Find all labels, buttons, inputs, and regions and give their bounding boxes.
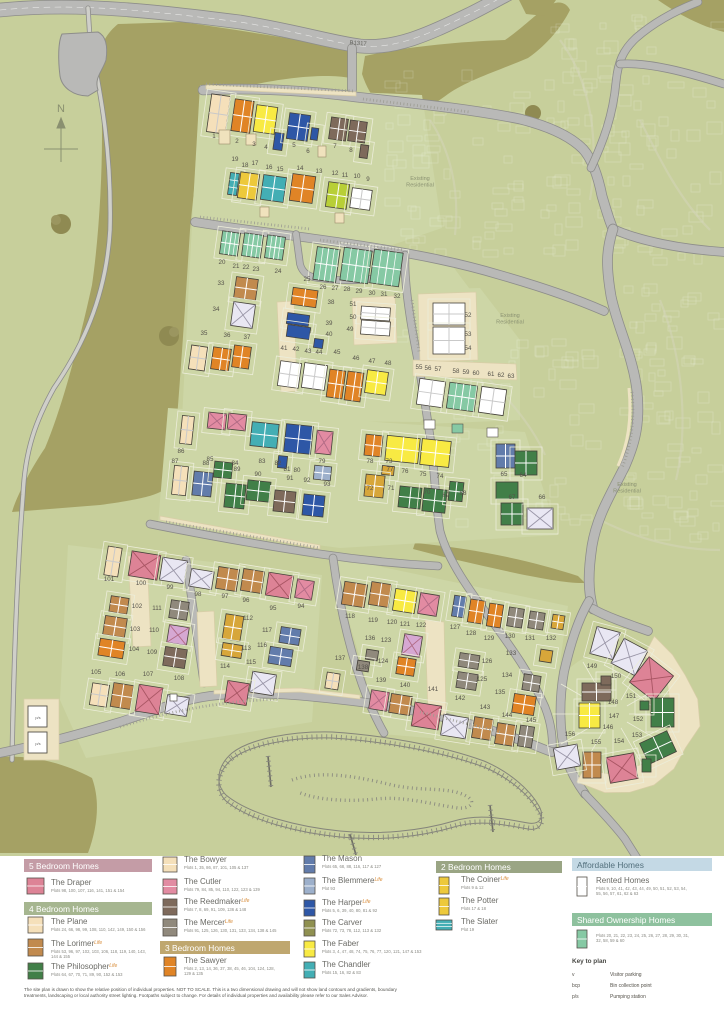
svg-text:99: 99: [167, 584, 174, 591]
svg-text:Rented Homes: Rented Homes: [596, 876, 649, 885]
svg-text:Plots 64, 67, 70, 71, 89, 90,: Plots 64, 67, 70, 71, 89, 90, 152 & 153: [51, 972, 123, 977]
svg-text:111: 111: [152, 605, 162, 612]
svg-text:147: 147: [609, 713, 620, 720]
svg-text:The Cutler: The Cutler: [184, 877, 222, 886]
svg-text:2 Bedroom Homes: 2 Bedroom Homes: [441, 862, 511, 872]
svg-text:67: 67: [509, 494, 516, 501]
svg-text:60: 60: [473, 370, 480, 377]
svg-text:52: 52: [465, 312, 472, 319]
svg-text:148: 148: [608, 699, 619, 706]
svg-text:The Draper: The Draper: [51, 878, 92, 887]
svg-text:The Faber: The Faber: [322, 939, 359, 948]
svg-text:100: 100: [136, 580, 147, 587]
svg-text:Shared Ownership Homes: Shared Ownership Homes: [577, 915, 675, 925]
svg-text:The Potter: The Potter: [461, 896, 499, 905]
svg-text:155: 155: [591, 739, 602, 746]
svg-text:66: 66: [539, 494, 546, 501]
svg-text:Plots 3, 4, 47, 48, 74, 75, 76: Plots 3, 4, 47, 48, 74, 75, 76, 77, 120,…: [322, 949, 422, 954]
svg-text:41: 41: [281, 345, 288, 352]
svg-text:The Bowyer: The Bowyer: [184, 855, 227, 864]
svg-text:62: 62: [498, 372, 505, 379]
svg-text:bcp: bcp: [572, 983, 580, 989]
svg-text:153: 153: [632, 732, 643, 739]
svg-text:23: 23: [253, 266, 260, 273]
svg-text:94: 94: [298, 603, 305, 610]
svg-text:45: 45: [334, 349, 341, 356]
svg-text:108: 108: [174, 675, 185, 682]
svg-text:112: 112: [243, 615, 253, 622]
svg-text:92: 92: [304, 477, 311, 484]
svg-text:110: 110: [149, 627, 159, 634]
svg-text:74: 74: [437, 473, 444, 480]
svg-text:Bin collection point: Bin collection point: [610, 983, 652, 989]
svg-text:15: 15: [277, 166, 284, 173]
svg-text:109: 109: [147, 649, 158, 656]
svg-text:123: 123: [381, 637, 392, 644]
svg-text:18: 18: [242, 162, 249, 169]
svg-text:151: 151: [626, 693, 637, 700]
svg-text:61: 61: [488, 371, 495, 378]
svg-text:Plots 72, 73, 78, 112, 113 & 1: Plots 72, 73, 78, 112, 113 & 132: [322, 928, 382, 933]
svg-text:42: 42: [293, 346, 300, 353]
svg-text:8: 8: [349, 147, 353, 154]
svg-text:75: 75: [420, 471, 427, 478]
svg-text:118: 118: [345, 613, 355, 620]
svg-text:128: 128: [466, 630, 477, 637]
svg-text:The Plane: The Plane: [51, 917, 88, 926]
svg-text:114: 114: [220, 663, 230, 670]
svg-text:p/s: p/s: [35, 741, 40, 746]
svg-text:139: 139: [376, 677, 387, 684]
svg-text:142: 142: [455, 695, 466, 702]
svg-text:93: 93: [324, 481, 331, 488]
svg-text:Plot 93: Plot 93: [322, 886, 336, 891]
svg-text:143: 143: [480, 704, 491, 711]
svg-text:The site plan is drawn to show: The site plan is drawn to show the relat…: [24, 987, 398, 998]
svg-text:50: 50: [350, 314, 357, 321]
svg-text:132: 132: [546, 635, 557, 642]
svg-text:The Sawyer: The Sawyer: [184, 956, 227, 965]
svg-text:20: 20: [219, 259, 226, 266]
svg-text:Plots 98, 100, 107, 116, 141,: Plots 98, 100, 107, 116, 141, 151 & 154: [51, 888, 125, 893]
svg-text:95: 95: [270, 605, 277, 612]
svg-text:29: 29: [356, 288, 363, 295]
svg-text:76: 76: [402, 468, 409, 475]
svg-text:54: 54: [465, 345, 472, 352]
svg-text:146: 146: [603, 724, 614, 731]
svg-text:63: 63: [508, 373, 515, 380]
svg-text:p/s: p/s: [35, 715, 40, 720]
svg-text:113: 113: [241, 645, 251, 652]
svg-text:The Slater: The Slater: [461, 917, 498, 926]
svg-text:24: 24: [275, 268, 282, 275]
svg-text:68: 68: [460, 490, 467, 497]
svg-text:90: 90: [255, 471, 262, 478]
svg-text:The PhilosopherLife: The PhilosopherLife: [51, 962, 118, 971]
svg-text:7: 7: [333, 143, 337, 150]
svg-text:27: 27: [332, 285, 339, 292]
svg-text:122: 122: [416, 622, 427, 629]
svg-text:Plots 7, 8, 69, 91, 109, 136 &: Plots 7, 8, 69, 91, 109, 136 & 148: [184, 907, 247, 912]
svg-text:47: 47: [369, 358, 376, 365]
svg-text:81: 81: [284, 466, 291, 473]
svg-text:89: 89: [234, 466, 241, 473]
svg-text:ExistingResidential: ExistingResidential: [613, 482, 641, 494]
svg-text:Plots 91, 125, 126, 130, 131,: Plots 91, 125, 126, 130, 131, 133, 134, …: [184, 928, 277, 933]
svg-text:96: 96: [243, 597, 250, 604]
svg-text:The Carver: The Carver: [322, 918, 362, 927]
svg-text:64: 64: [520, 472, 527, 479]
svg-text:97: 97: [222, 593, 229, 600]
svg-text:59: 59: [463, 369, 470, 376]
svg-text:12: 12: [332, 170, 339, 177]
svg-text:107: 107: [143, 671, 154, 678]
svg-text:44: 44: [316, 349, 323, 356]
svg-text:150: 150: [611, 673, 622, 680]
svg-text:77: 77: [387, 466, 394, 473]
svg-text:49: 49: [347, 326, 354, 333]
svg-text:133: 133: [506, 650, 517, 657]
svg-text:Plots 15, 16, 82 & 83: Plots 15, 16, 82 & 83: [322, 970, 362, 975]
svg-text:Plots 17 & 18: Plots 17 & 18: [461, 906, 487, 911]
svg-text:B1317: B1317: [349, 40, 367, 47]
svg-text:154: 154: [614, 738, 625, 745]
svg-text:46: 46: [353, 355, 360, 362]
svg-text:33: 33: [218, 280, 225, 287]
svg-text:17: 17: [252, 160, 259, 167]
svg-text:57: 57: [435, 366, 442, 373]
svg-text:156: 156: [565, 731, 576, 738]
svg-text:16: 16: [266, 164, 273, 171]
svg-text:101: 101: [104, 576, 115, 583]
svg-text:88: 88: [203, 460, 210, 467]
svg-text:98: 98: [195, 591, 202, 598]
svg-text:127: 127: [450, 624, 461, 631]
svg-text:Plots 5, 6, 39, 40, 80, 81 & 9: Plots 5, 6, 39, 40, 80, 81 & 92: [322, 908, 378, 913]
svg-text:22: 22: [243, 264, 250, 271]
svg-text:78: 78: [367, 458, 374, 465]
svg-text:ExistingResidential: ExistingResidential: [406, 176, 434, 188]
svg-text:141: 141: [428, 686, 439, 693]
svg-text:145: 145: [526, 717, 537, 724]
svg-text:71: 71: [388, 485, 395, 492]
svg-text:152: 152: [633, 716, 644, 723]
svg-text:69: 69: [443, 492, 450, 499]
svg-text:5 Bedroom Homes: 5 Bedroom Homes: [29, 861, 99, 871]
svg-text:Plots 24, 66, 98, 99, 108, 110: Plots 24, 66, 98, 99, 108, 110, 142, 149…: [51, 927, 146, 932]
svg-text:Plots 65, 68, 88, 116, 117 & 1: Plots 65, 68, 88, 116, 117 & 127: [322, 864, 382, 869]
svg-text:51: 51: [350, 301, 357, 308]
svg-text:Plots 1, 35, 86, 87, 101, 105: Plots 1, 35, 86, 87, 101, 105 & 137: [184, 865, 249, 870]
svg-text:The Mason: The Mason: [322, 854, 362, 863]
svg-text:38: 38: [328, 299, 335, 306]
svg-text:80: 80: [294, 467, 301, 474]
svg-text:6: 6: [306, 148, 310, 155]
svg-text:131: 131: [525, 635, 536, 642]
svg-text:Plots 79, 84, 85, 94, 110, 122: Plots 79, 84, 85, 94, 110, 122, 123 & 13…: [184, 887, 260, 892]
svg-text:31: 31: [381, 291, 388, 298]
svg-text:10: 10: [354, 173, 361, 180]
svg-text:4: 4: [264, 144, 268, 151]
svg-text:149: 149: [587, 663, 598, 670]
svg-text:N: N: [57, 103, 65, 115]
svg-text:73: 73: [386, 458, 393, 465]
svg-text:135: 135: [495, 689, 506, 696]
svg-text:102: 102: [132, 603, 143, 610]
svg-text:39: 39: [326, 320, 333, 327]
svg-text:86: 86: [178, 448, 185, 455]
svg-text:13: 13: [316, 168, 323, 175]
svg-text:32: 32: [394, 293, 401, 300]
svg-text:117: 117: [262, 627, 272, 634]
svg-text:2: 2: [235, 138, 239, 145]
svg-text:105: 105: [91, 669, 102, 676]
svg-text:91: 91: [287, 475, 294, 482]
svg-text:121: 121: [400, 621, 411, 628]
svg-text:103: 103: [130, 626, 141, 633]
svg-text:116: 116: [257, 642, 267, 649]
svg-text:9: 9: [366, 176, 370, 183]
svg-text:136: 136: [365, 635, 376, 642]
svg-text:p/s: p/s: [572, 994, 579, 1000]
svg-text:126: 126: [482, 658, 493, 665]
svg-text:Affordable Homes: Affordable Homes: [577, 860, 644, 870]
svg-text:The Chandler: The Chandler: [322, 960, 371, 969]
svg-text:Key to plan: Key to plan: [572, 958, 607, 965]
svg-text:124: 124: [378, 658, 389, 665]
svg-text:83: 83: [259, 458, 266, 465]
svg-text:25: 25: [304, 276, 311, 283]
svg-text:129: 129: [484, 635, 495, 642]
svg-text:14: 14: [297, 165, 304, 172]
svg-text:Visitor parking: Visitor parking: [610, 972, 642, 978]
svg-text:138: 138: [358, 664, 369, 671]
svg-text:Plot 19: Plot 19: [461, 927, 475, 932]
svg-text:Plots 9 & 12: Plots 9 & 12: [461, 885, 484, 890]
svg-text:53: 53: [465, 331, 472, 338]
svg-text:72: 72: [367, 485, 374, 492]
svg-text:36: 36: [224, 332, 231, 339]
svg-text:4 Bedroom Homes: 4 Bedroom Homes: [29, 904, 99, 914]
svg-text:Pumping station: Pumping station: [610, 994, 646, 1000]
svg-text:104: 104: [129, 646, 140, 653]
svg-text:134: 134: [502, 672, 513, 679]
svg-text:55: 55: [416, 364, 423, 371]
svg-text:140: 140: [400, 682, 411, 689]
svg-text:130: 130: [505, 633, 516, 640]
svg-text:115: 115: [246, 659, 256, 666]
svg-text:28: 28: [344, 286, 351, 293]
svg-text:137: 137: [335, 655, 346, 662]
svg-text:125: 125: [477, 676, 488, 683]
svg-text:56: 56: [425, 365, 432, 372]
svg-text:106: 106: [115, 671, 126, 678]
svg-text:21: 21: [233, 263, 240, 270]
svg-text:43: 43: [305, 348, 312, 355]
svg-text:65: 65: [501, 471, 508, 478]
svg-text:The ReedmakerLife: The ReedmakerLife: [184, 897, 250, 906]
svg-text:11: 11: [342, 172, 349, 179]
svg-text:3: 3: [252, 141, 256, 148]
svg-text:3 Bedroom Homes: 3 Bedroom Homes: [165, 943, 235, 953]
svg-text:58: 58: [453, 368, 460, 375]
svg-text:48: 48: [385, 360, 392, 367]
svg-text:87: 87: [172, 458, 179, 465]
svg-text:ExistingResidential: ExistingResidential: [496, 313, 524, 325]
svg-text:40: 40: [326, 331, 333, 338]
svg-text:37: 37: [244, 334, 251, 341]
svg-text:30: 30: [369, 290, 376, 297]
svg-text:5: 5: [292, 142, 296, 149]
svg-text:34: 34: [213, 306, 220, 313]
svg-text:120: 120: [387, 619, 398, 626]
svg-text:144: 144: [502, 712, 513, 719]
svg-text:The BlemmereLife: The BlemmereLife: [322, 876, 383, 885]
svg-text:1: 1: [212, 133, 216, 140]
svg-text:26: 26: [320, 284, 327, 291]
svg-text:79: 79: [319, 458, 326, 465]
svg-text:19: 19: [232, 156, 239, 163]
svg-text:35: 35: [201, 330, 208, 337]
svg-text:70: 70: [424, 489, 431, 496]
svg-text:119: 119: [368, 617, 378, 624]
svg-text:82: 82: [275, 460, 282, 467]
